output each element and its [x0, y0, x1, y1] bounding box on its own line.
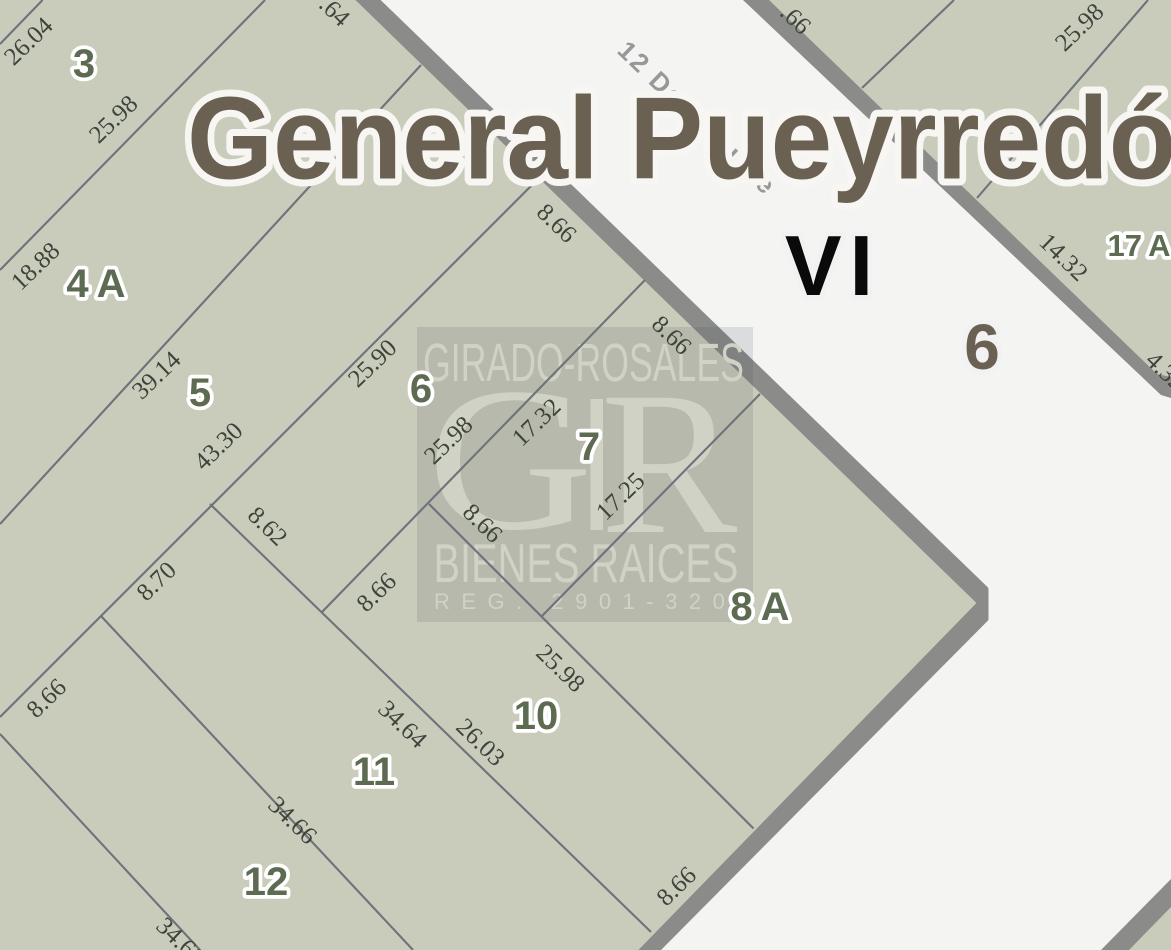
svg-text:REG. 2901-3204: REG. 2901-3204: [434, 589, 760, 614]
svg-text:10: 10: [514, 694, 559, 738]
svg-text:VI: VI: [785, 219, 881, 314]
svg-text:5: 5: [189, 371, 211, 415]
svg-text:17 A: 17 A: [1107, 228, 1170, 263]
svg-text:6: 6: [964, 311, 1000, 383]
svg-text:BIENES RAICES: BIENES RAICES: [434, 534, 739, 595]
svg-text:11: 11: [353, 750, 395, 794]
svg-text:12: 12: [244, 860, 289, 904]
svg-text:6: 6: [410, 367, 432, 411]
svg-text:7: 7: [578, 425, 600, 469]
svg-text:4 A: 4 A: [66, 262, 125, 306]
svg-text:8 A: 8 A: [730, 585, 789, 629]
svg-text:General Pueyrredón: General Pueyrredón: [187, 74, 1171, 205]
svg-text:3: 3: [73, 42, 95, 86]
